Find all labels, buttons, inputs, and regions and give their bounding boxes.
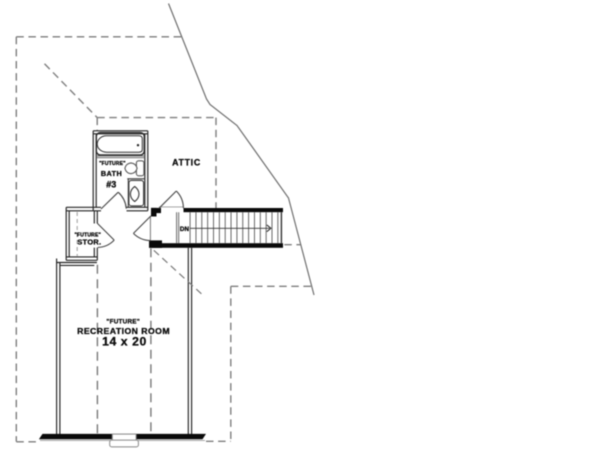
svg-text:"FUTURE": "FUTURE" xyxy=(106,319,140,326)
svg-text:#3: #3 xyxy=(106,180,116,190)
svg-text:STOR.: STOR. xyxy=(77,238,101,247)
svg-text:"FUTURE": "FUTURE" xyxy=(99,161,126,167)
svg-text:14 x 20: 14 x 20 xyxy=(102,335,147,349)
svg-text:DN: DN xyxy=(180,226,190,233)
svg-text:BATH: BATH xyxy=(101,169,122,178)
svg-text:ATTIC: ATTIC xyxy=(172,158,201,168)
